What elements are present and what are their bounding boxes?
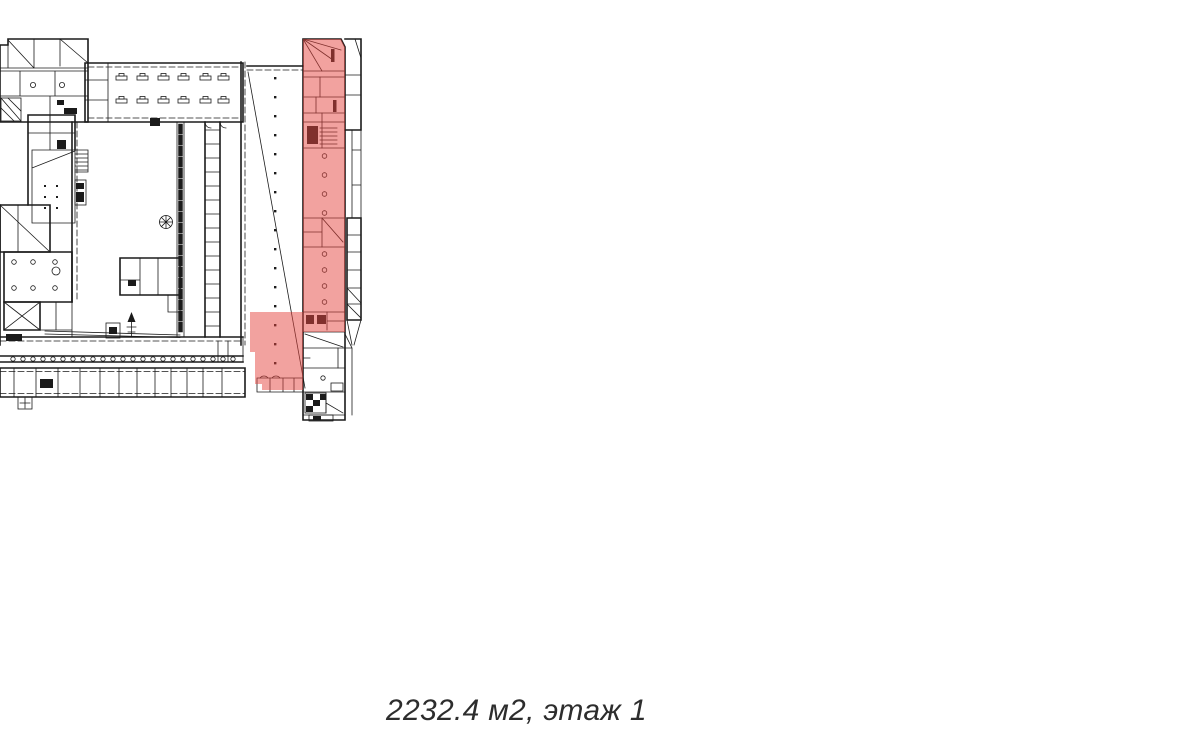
highlighted-area-strip	[303, 39, 345, 332]
page: 2232.4 м2, этаж 1	[0, 0, 1200, 745]
highlighted-area-yard	[250, 312, 303, 390]
gallery-columns	[11, 357, 235, 361]
area-caption: 2232.4 м2, этаж 1	[386, 694, 647, 728]
spiral-stair	[160, 216, 173, 229]
floor-plan	[0, 0, 1200, 745]
